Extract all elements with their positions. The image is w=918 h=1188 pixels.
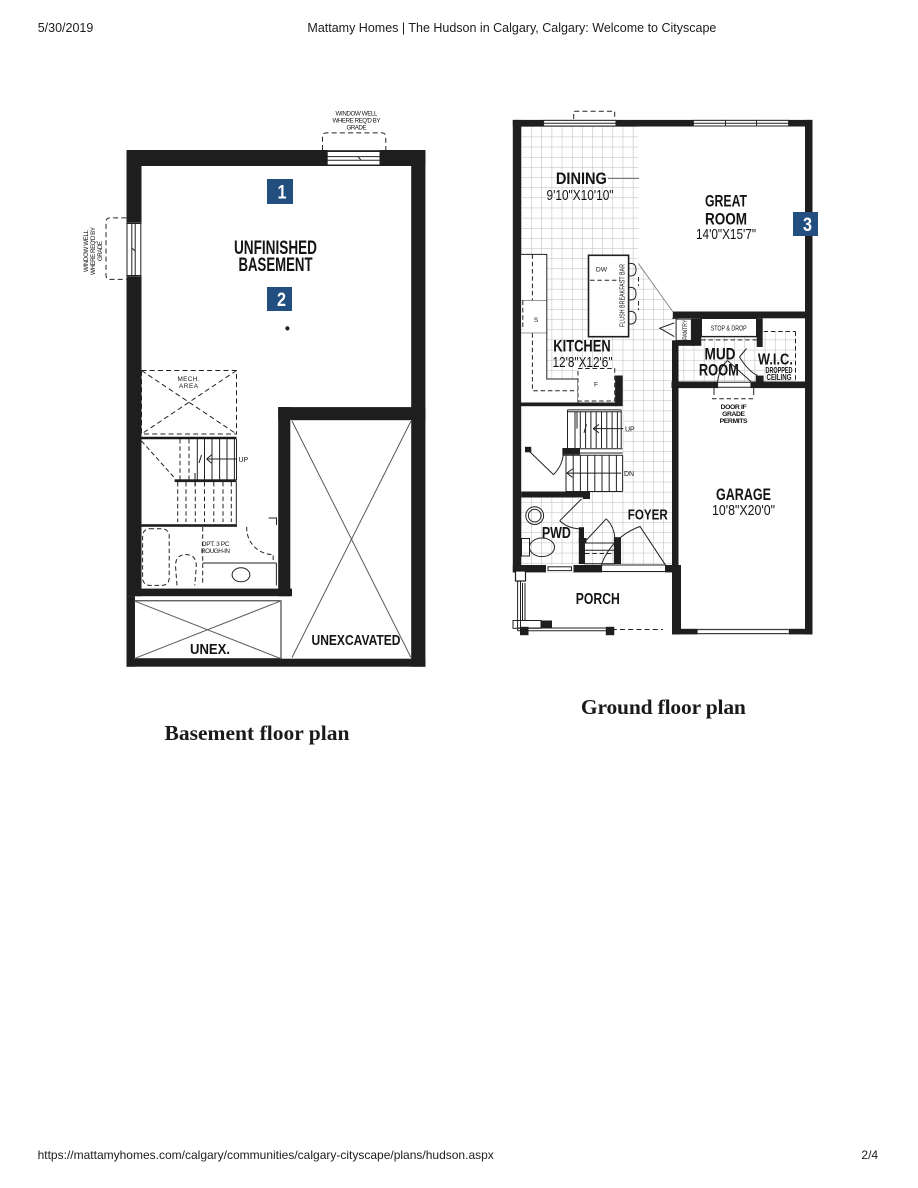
svg-text:PWD: PWD (542, 525, 571, 542)
svg-text:DINING: DINING (556, 170, 607, 188)
svg-text:9'10"X10'10": 9'10"X10'10" (547, 188, 614, 204)
svg-text:CEILING: CEILING (767, 373, 792, 382)
svg-text:GRADE: GRADE (347, 125, 367, 132)
svg-text:BASEMENT: BASEMENT (239, 255, 313, 276)
svg-text:S: S (534, 317, 539, 324)
svg-text:WHERE REQ'D BY: WHERE REQ'D BY (333, 118, 381, 125)
svg-text:WINDOW WELL: WINDOW WELL (83, 229, 90, 272)
svg-text:GARAGE: GARAGE (716, 486, 771, 504)
svg-text:MECH.: MECH. (178, 376, 200, 383)
svg-text:FOYER: FOYER (628, 507, 668, 523)
svg-text:WHERE REQ'D BY: WHERE REQ'D BY (90, 227, 97, 275)
svg-text:5/30/2019: 5/30/2019 (38, 21, 94, 35)
svg-text:GRADE: GRADE (722, 411, 745, 418)
svg-text:3: 3 (803, 215, 812, 236)
svg-text:Mattamy Homes | The Hudson in: Mattamy Homes | The Hudson in Calgary, C… (307, 21, 716, 35)
svg-text:14'0"X15'7": 14'0"X15'7" (696, 227, 756, 243)
svg-text:DOOR IF: DOOR IF (721, 404, 747, 411)
svg-text:10'8"X20'0": 10'8"X20'0" (712, 503, 775, 519)
svg-text:PORCH: PORCH (576, 591, 620, 608)
svg-text:KITCHEN: KITCHEN (553, 338, 610, 356)
svg-text:2: 2 (277, 290, 286, 311)
svg-text:1: 1 (278, 183, 287, 204)
svg-text:PERMITS: PERMITS (720, 418, 748, 425)
svg-text:FLUSH BREAKFAST BAR: FLUSH BREAKFAST BAR (618, 264, 627, 327)
svg-text:AREA: AREA (179, 383, 199, 390)
svg-text:UNEX.: UNEX. (190, 642, 230, 658)
svg-text:Basement floor plan: Basement floor plan (165, 721, 350, 745)
svg-text:DN: DN (624, 471, 634, 478)
svg-text:DW: DW (596, 267, 608, 274)
svg-text:ROUGH-IN: ROUGH-IN (201, 548, 230, 555)
svg-text:GREAT: GREAT (705, 193, 747, 211)
svg-text:UNEXCAVATED: UNEXCAVATED (312, 633, 401, 649)
svg-text:Ground floor plan: Ground floor plan (581, 695, 746, 719)
svg-text:GRADE: GRADE (97, 241, 104, 261)
svg-text:2/4: 2/4 (861, 1148, 878, 1162)
svg-text:UP: UP (625, 427, 635, 434)
svg-text:ROOM: ROOM (705, 211, 747, 229)
svg-text:F: F (594, 382, 598, 389)
svg-text:STOP & DROP: STOP & DROP (711, 324, 747, 333)
svg-text:WINDOW WELL: WINDOW WELL (336, 111, 379, 118)
svg-text:UP: UP (239, 457, 249, 464)
svg-text:PANTRY: PANTRY (682, 320, 689, 340)
svg-text:https://mattamyhomes.com/calga: https://mattamyhomes.com/calgary/communi… (38, 1148, 494, 1162)
svg-text:OPT. 3 PC: OPT. 3 PC (202, 541, 230, 548)
svg-text:12'8"X12'6": 12'8"X12'6" (553, 355, 613, 371)
